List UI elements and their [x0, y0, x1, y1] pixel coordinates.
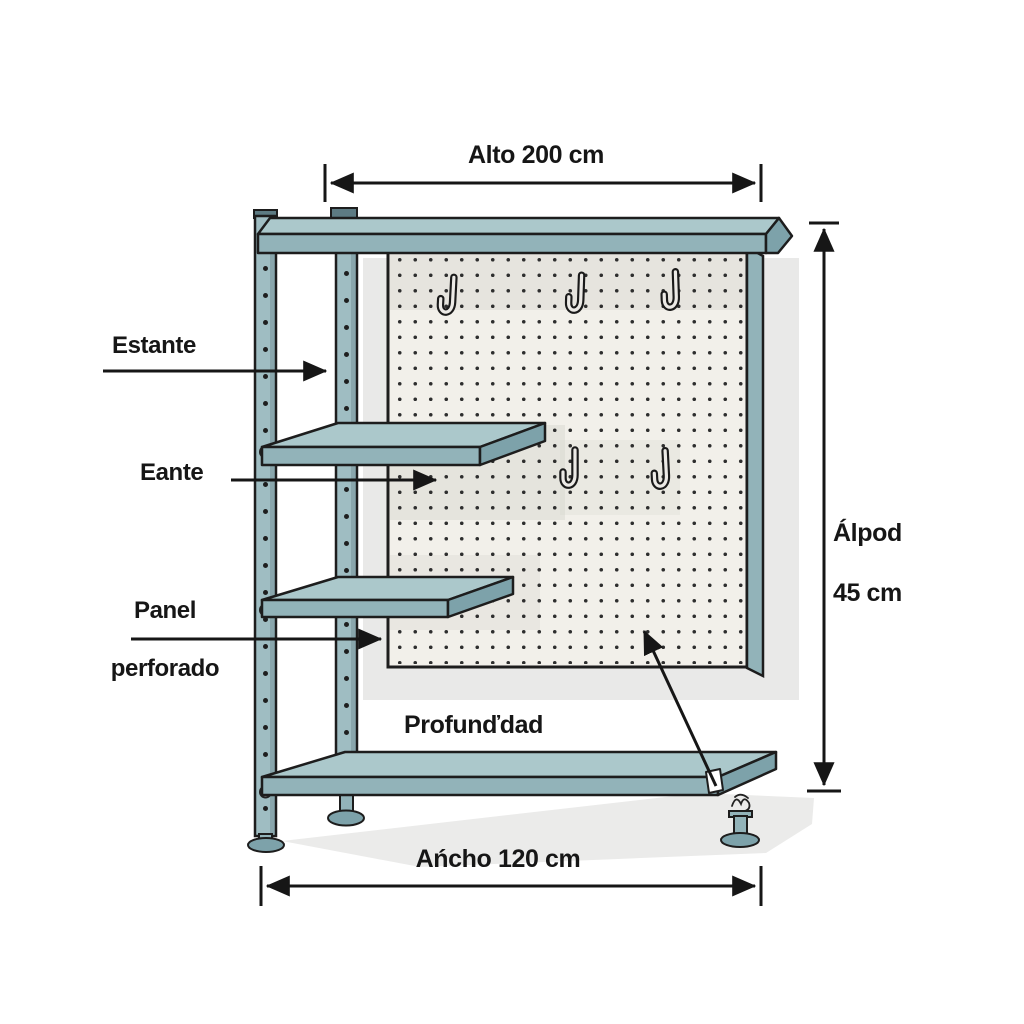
diagram-canvas: Estante Eante Panel perforado Profunďdad… — [0, 0, 1024, 1024]
label-profundidad: Profunďdad — [404, 711, 543, 739]
dimension-fondo-line2: 45 cm — [833, 579, 902, 607]
pegboard-side-edge — [747, 247, 763, 676]
label-eante: Eante — [140, 460, 203, 487]
bottom-shelf — [262, 752, 776, 795]
post-inner — [328, 208, 364, 826]
label-panel-line1: Panel — [134, 597, 196, 624]
top-shelf — [258, 218, 792, 253]
dimension-ancho: Ańcho 120 cm — [378, 845, 618, 873]
dim-alto-line — [325, 164, 761, 202]
label-panel-line2: perforado — [111, 655, 219, 682]
dimension-alto: Alto 200 cm — [416, 141, 656, 169]
label-estante: Estante — [112, 333, 196, 360]
dimension-fondo-line1: Álpod — [833, 519, 902, 547]
label-panel-perforado: Panel perforado — [104, 567, 226, 683]
leveling-foot-icon — [248, 834, 284, 852]
dimension-fondo: Álpod 45 cm — [833, 488, 902, 608]
post-front-left — [248, 210, 284, 852]
